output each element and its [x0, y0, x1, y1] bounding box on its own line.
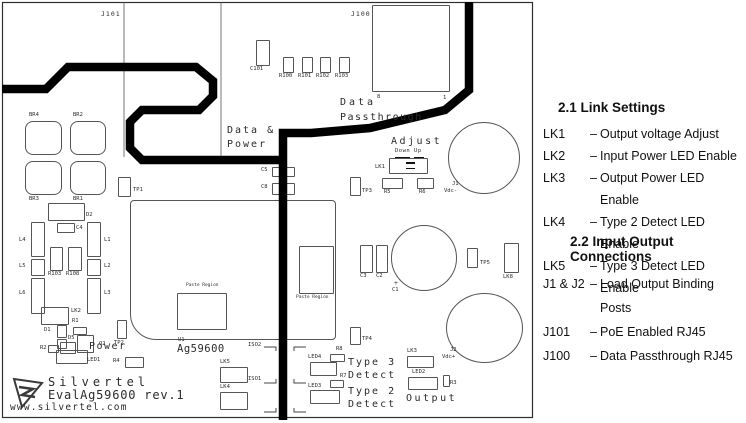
eval-board-figure: C101R100R101R102R103BR4BR2BR3BR1TP1D2C4L… [0, 0, 746, 423]
legend-row-description: Data Passthrough RJ45 [600, 344, 746, 368]
legend-row-description: PoE Enabled RJ45 [600, 320, 746, 344]
legend-row-lk2: LK2–Input Power LED Enable [543, 145, 746, 167]
legend-row-separator: – [590, 145, 600, 167]
legend-row-label: J101 [543, 320, 590, 344]
pcb-diagram: C101R100R101R102R103BR4BR2BR3BR1TP1D2C4L… [0, 0, 540, 423]
legend-row-label: LK3 [543, 167, 590, 211]
legend-panel: 2.1 Link Settings LK1–Output voltage Adj… [543, 0, 746, 423]
legend-row-separator: – [590, 320, 600, 344]
legend-row-lk3: LK3–Output Power LED Enable [543, 167, 746, 211]
legend-row-separator: – [590, 344, 600, 368]
legend-row-separator: – [590, 272, 600, 320]
legend-row-label: J1 & J2 [543, 272, 590, 320]
jumper-mark-layer [0, 0, 540, 423]
legend-row-description: Load Output Binding Posts [600, 272, 746, 320]
legend-row-description: Input Power LED Enable [600, 145, 746, 167]
legend-title-link-settings: 2.1 Link Settings [543, 100, 746, 115]
legend-section-io-connections: 2.2 Input Output Connections J1 & J2–Loa… [543, 234, 746, 368]
legend-row-description: Output Power LED Enable [600, 167, 746, 211]
legend-row-j100: J100–Data Passthrough RJ45 [543, 344, 746, 368]
legend-row-separator: – [590, 167, 600, 211]
logo-brand-text: Silvertel [48, 376, 149, 388]
legend-row-label: J100 [543, 344, 590, 368]
lk1-jumper-dash-1 [406, 162, 415, 164]
legend-row-separator: – [590, 123, 600, 145]
legend-row-j101: J101–PoE Enabled RJ45 [543, 320, 746, 344]
legend-title-io-connections: 2.2 Input Output Connections [543, 234, 746, 264]
legend-row-label: LK2 [543, 145, 590, 167]
up-underline [414, 157, 424, 158]
board-model-text: EvalAg59600 rev.1 [48, 389, 184, 401]
legend-row-j1-j2: J1 & J2–Load Output Binding Posts [543, 272, 746, 320]
legend-row-description: Output voltage Adjust [600, 123, 746, 145]
legend-row-label: LK1 [543, 123, 590, 145]
down-underline [395, 157, 410, 158]
logo-url-text: www.silvertel.com [10, 403, 128, 413]
lk1-jumper-dash-2 [406, 168, 415, 170]
legend-row-lk1: LK1–Output voltage Adjust [543, 123, 746, 145]
